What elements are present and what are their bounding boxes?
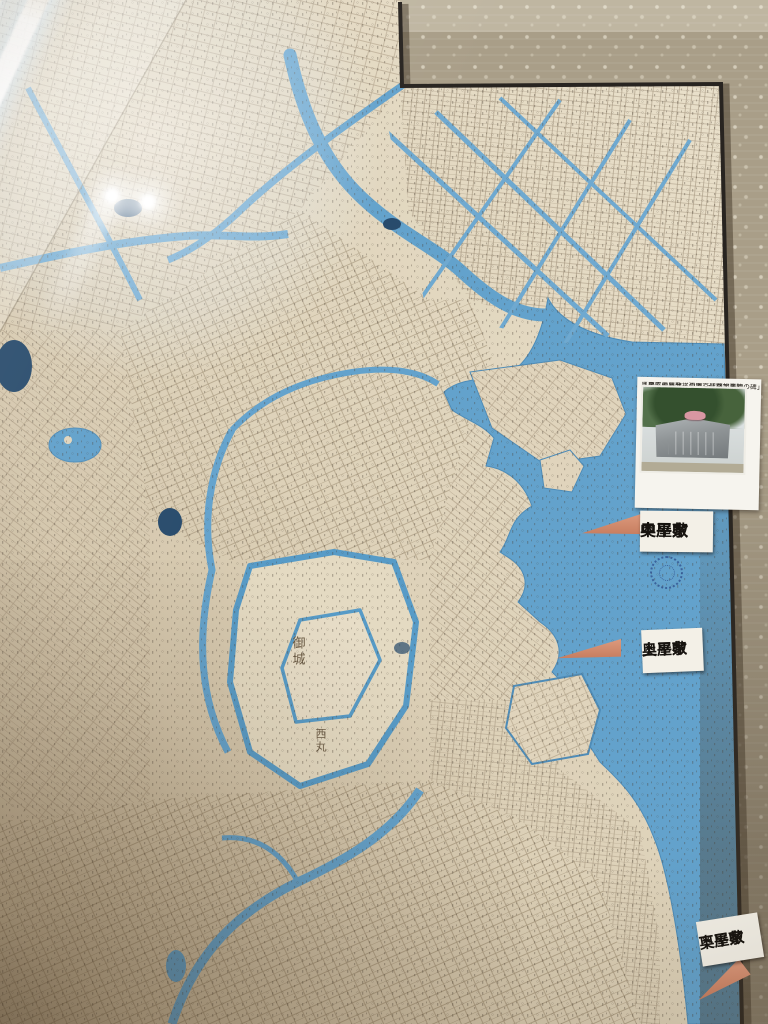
label-line2: 中屋敷 (640, 522, 688, 542)
framed-map-photo: 御城 西丸 奥平家中屋敷・現東京聖路加病院 「慶応義 (0, 0, 768, 1024)
photo-caption-card: 奥平家中屋敷・現東京聖路加病院 「慶応義塾発祥の地」・「蘭学事始の碑」 (635, 377, 762, 511)
photo-stone-monument (655, 417, 730, 458)
label-line2: 下屋敷 (698, 927, 746, 954)
photo-ground (641, 462, 743, 473)
monument-photo (639, 385, 747, 475)
compass-seal-stamp-icon (650, 556, 683, 589)
label-okudaira-shimoyashiki: 奥平家 下屋敷 (696, 912, 764, 966)
tube-glare-tip (140, 194, 156, 210)
label-okudaira-kamiyashiki: 奥平家 上屋敷 (641, 628, 704, 674)
label-line2: 上屋敷 (642, 640, 688, 661)
label-okudaira-nakayashiki: 奥平家 中屋敷 (640, 511, 713, 553)
photo-flower-bundle (684, 410, 706, 420)
